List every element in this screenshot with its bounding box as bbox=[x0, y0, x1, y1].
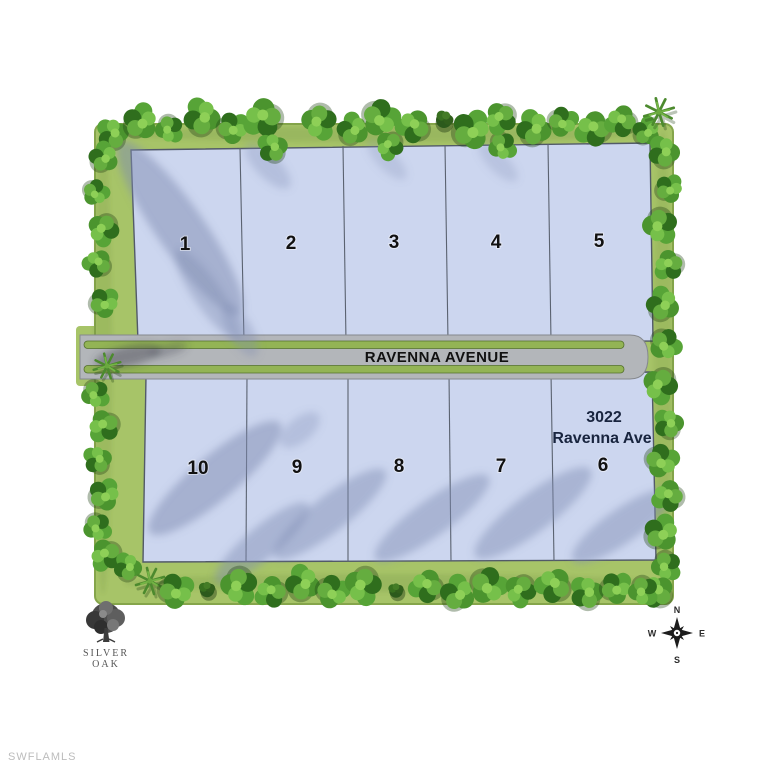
compass-west-label: W bbox=[648, 629, 657, 639]
compass-rose-icon: N E S W bbox=[648, 605, 705, 665]
watermark-label: SWFLAMLS bbox=[8, 751, 77, 763]
lot-number: 3 bbox=[389, 232, 400, 253]
lot-number: 7 bbox=[496, 456, 507, 477]
address-line1: 3022 bbox=[586, 409, 622, 426]
address-line2: Ravenna Ave bbox=[552, 430, 651, 447]
site-plan-svg: RAVENNA AVENUE 1 2 3 4 5 10 9 8 7 6 3022… bbox=[0, 0, 768, 768]
street-name-label: RAVENNA AVENUE bbox=[365, 349, 510, 366]
developer-logo: SILVER OAK bbox=[83, 601, 129, 670]
compass-south-label: S bbox=[674, 655, 680, 665]
lot-number: 2 bbox=[286, 233, 297, 254]
lot-number: 9 bbox=[292, 457, 303, 478]
lot-number: 1 bbox=[180, 234, 191, 255]
lot-number: 10 bbox=[187, 458, 208, 479]
lot-number: 6 bbox=[598, 455, 609, 476]
compass-north-label: N bbox=[674, 605, 681, 615]
road-median-south bbox=[84, 366, 624, 374]
lot-number: 8 bbox=[394, 456, 405, 477]
lot-number: 4 bbox=[491, 232, 502, 253]
plat-map-image: RAVENNA AVENUE 1 2 3 4 5 10 9 8 7 6 3022… bbox=[0, 0, 768, 768]
logo-name-line1: SILVER bbox=[83, 648, 129, 659]
lot-number: 5 bbox=[594, 231, 605, 252]
logo-tree-icon bbox=[86, 601, 125, 642]
logo-name-line2: OAK bbox=[92, 659, 120, 670]
compass-east-label: E bbox=[699, 629, 705, 639]
